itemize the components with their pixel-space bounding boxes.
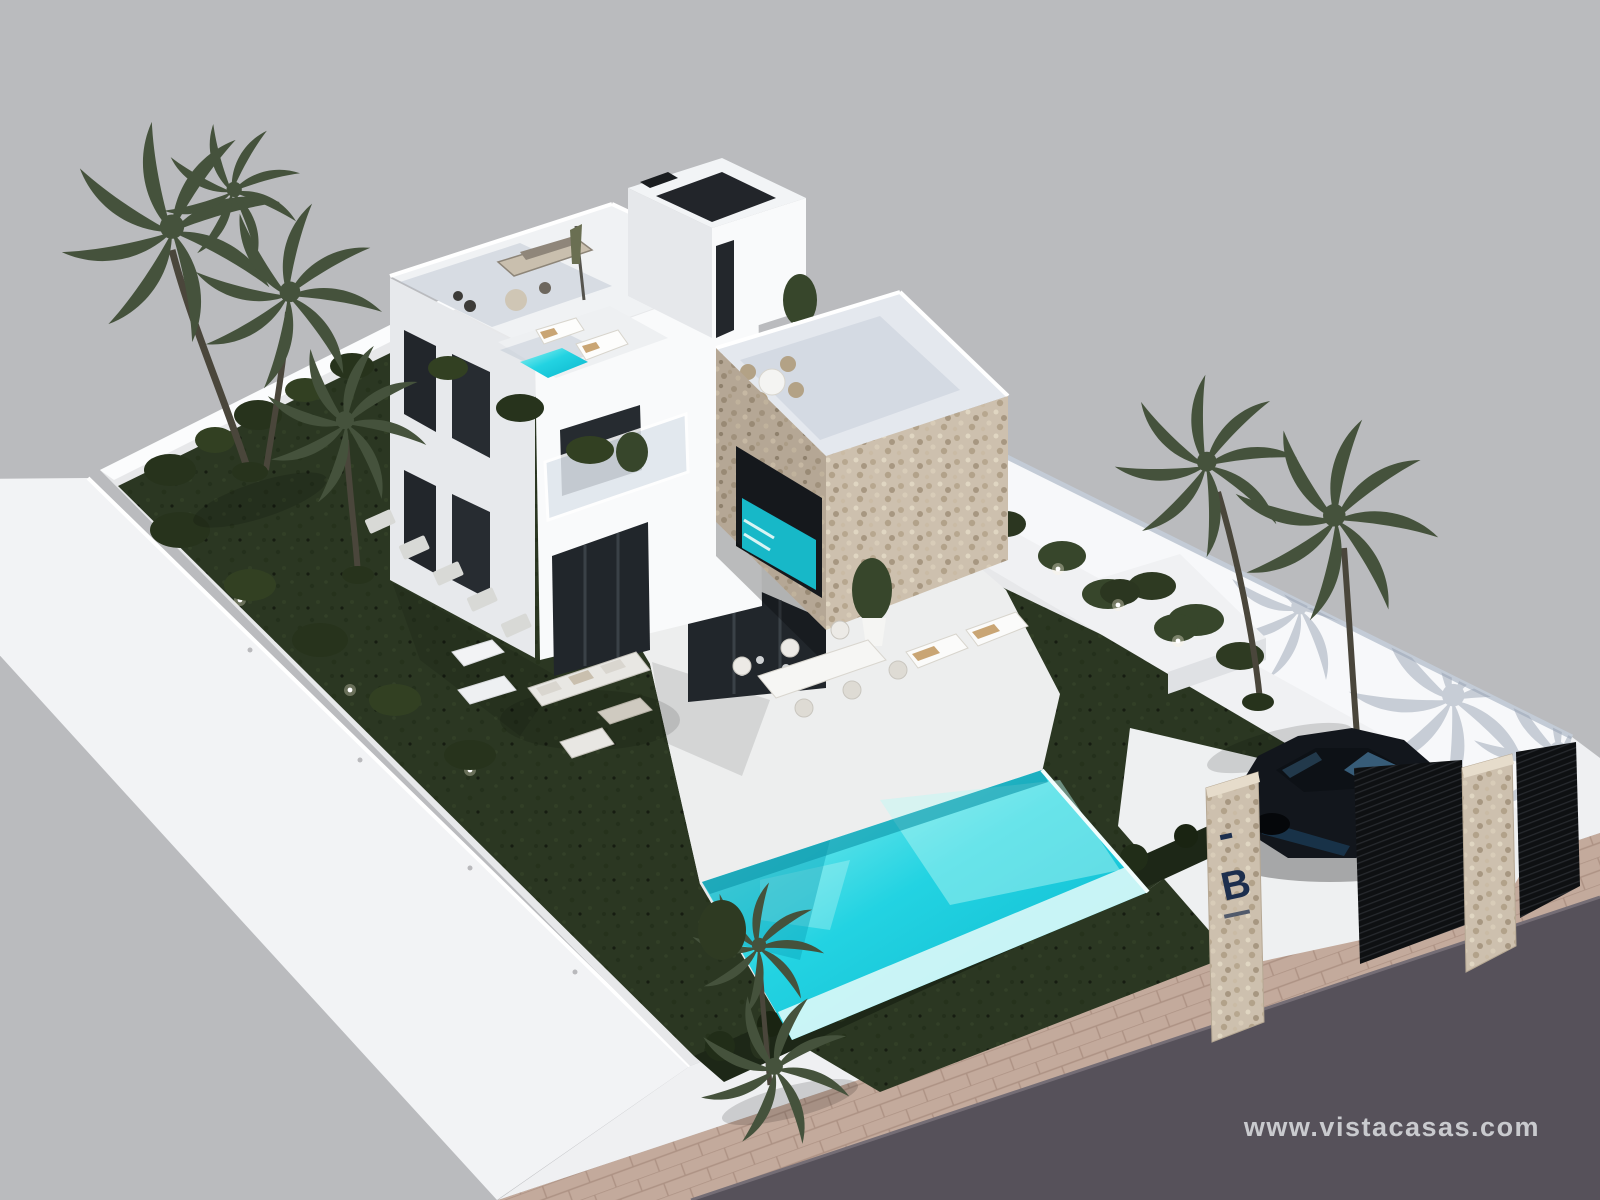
dining-chair: [781, 639, 799, 657]
scene: B www.vistacasas.com: [0, 0, 1600, 1200]
roof-ottoman: [505, 289, 527, 311]
bush: [144, 454, 196, 486]
window: [404, 470, 436, 574]
dining-chair: [843, 681, 861, 699]
bush: [369, 684, 421, 716]
roof-side-table: [539, 282, 551, 294]
gate-pillar-right: [1462, 754, 1516, 972]
tower-window: [716, 240, 734, 338]
bush: [224, 569, 276, 601]
bush: [292, 623, 348, 657]
bush: [566, 436, 614, 464]
palm-base-bush: [1242, 693, 1274, 711]
hedge-puff: [1174, 824, 1198, 848]
lantern: [464, 300, 476, 312]
banana-plant: [698, 900, 746, 960]
patio-plant: [852, 558, 892, 622]
bush: [444, 740, 496, 770]
dining-chair: [889, 661, 907, 679]
closed-umbrella: [570, 224, 582, 264]
interior-chair: [756, 656, 764, 664]
palm-base-bush: [232, 462, 268, 482]
dining-chair: [831, 621, 849, 639]
watermark-url: www.vistacasas.com: [1243, 1112, 1540, 1142]
lantern: [453, 291, 463, 301]
dining-chair: [733, 657, 751, 675]
weep-hole: [358, 758, 363, 763]
terrace-chair: [780, 356, 796, 372]
weep-hole: [468, 866, 473, 871]
bush: [496, 394, 544, 422]
villa-3d-render: B www.vistacasas.com: [0, 0, 1600, 1200]
palm-base-bush: [342, 566, 374, 584]
terrace-table: [759, 369, 785, 395]
bush: [195, 427, 235, 453]
bush: [428, 356, 468, 380]
balcony-plant: [616, 432, 648, 472]
dining-chair: [795, 699, 813, 717]
terrace-chair: [788, 382, 804, 398]
weep-hole: [248, 648, 253, 653]
weep-hole: [573, 970, 578, 975]
